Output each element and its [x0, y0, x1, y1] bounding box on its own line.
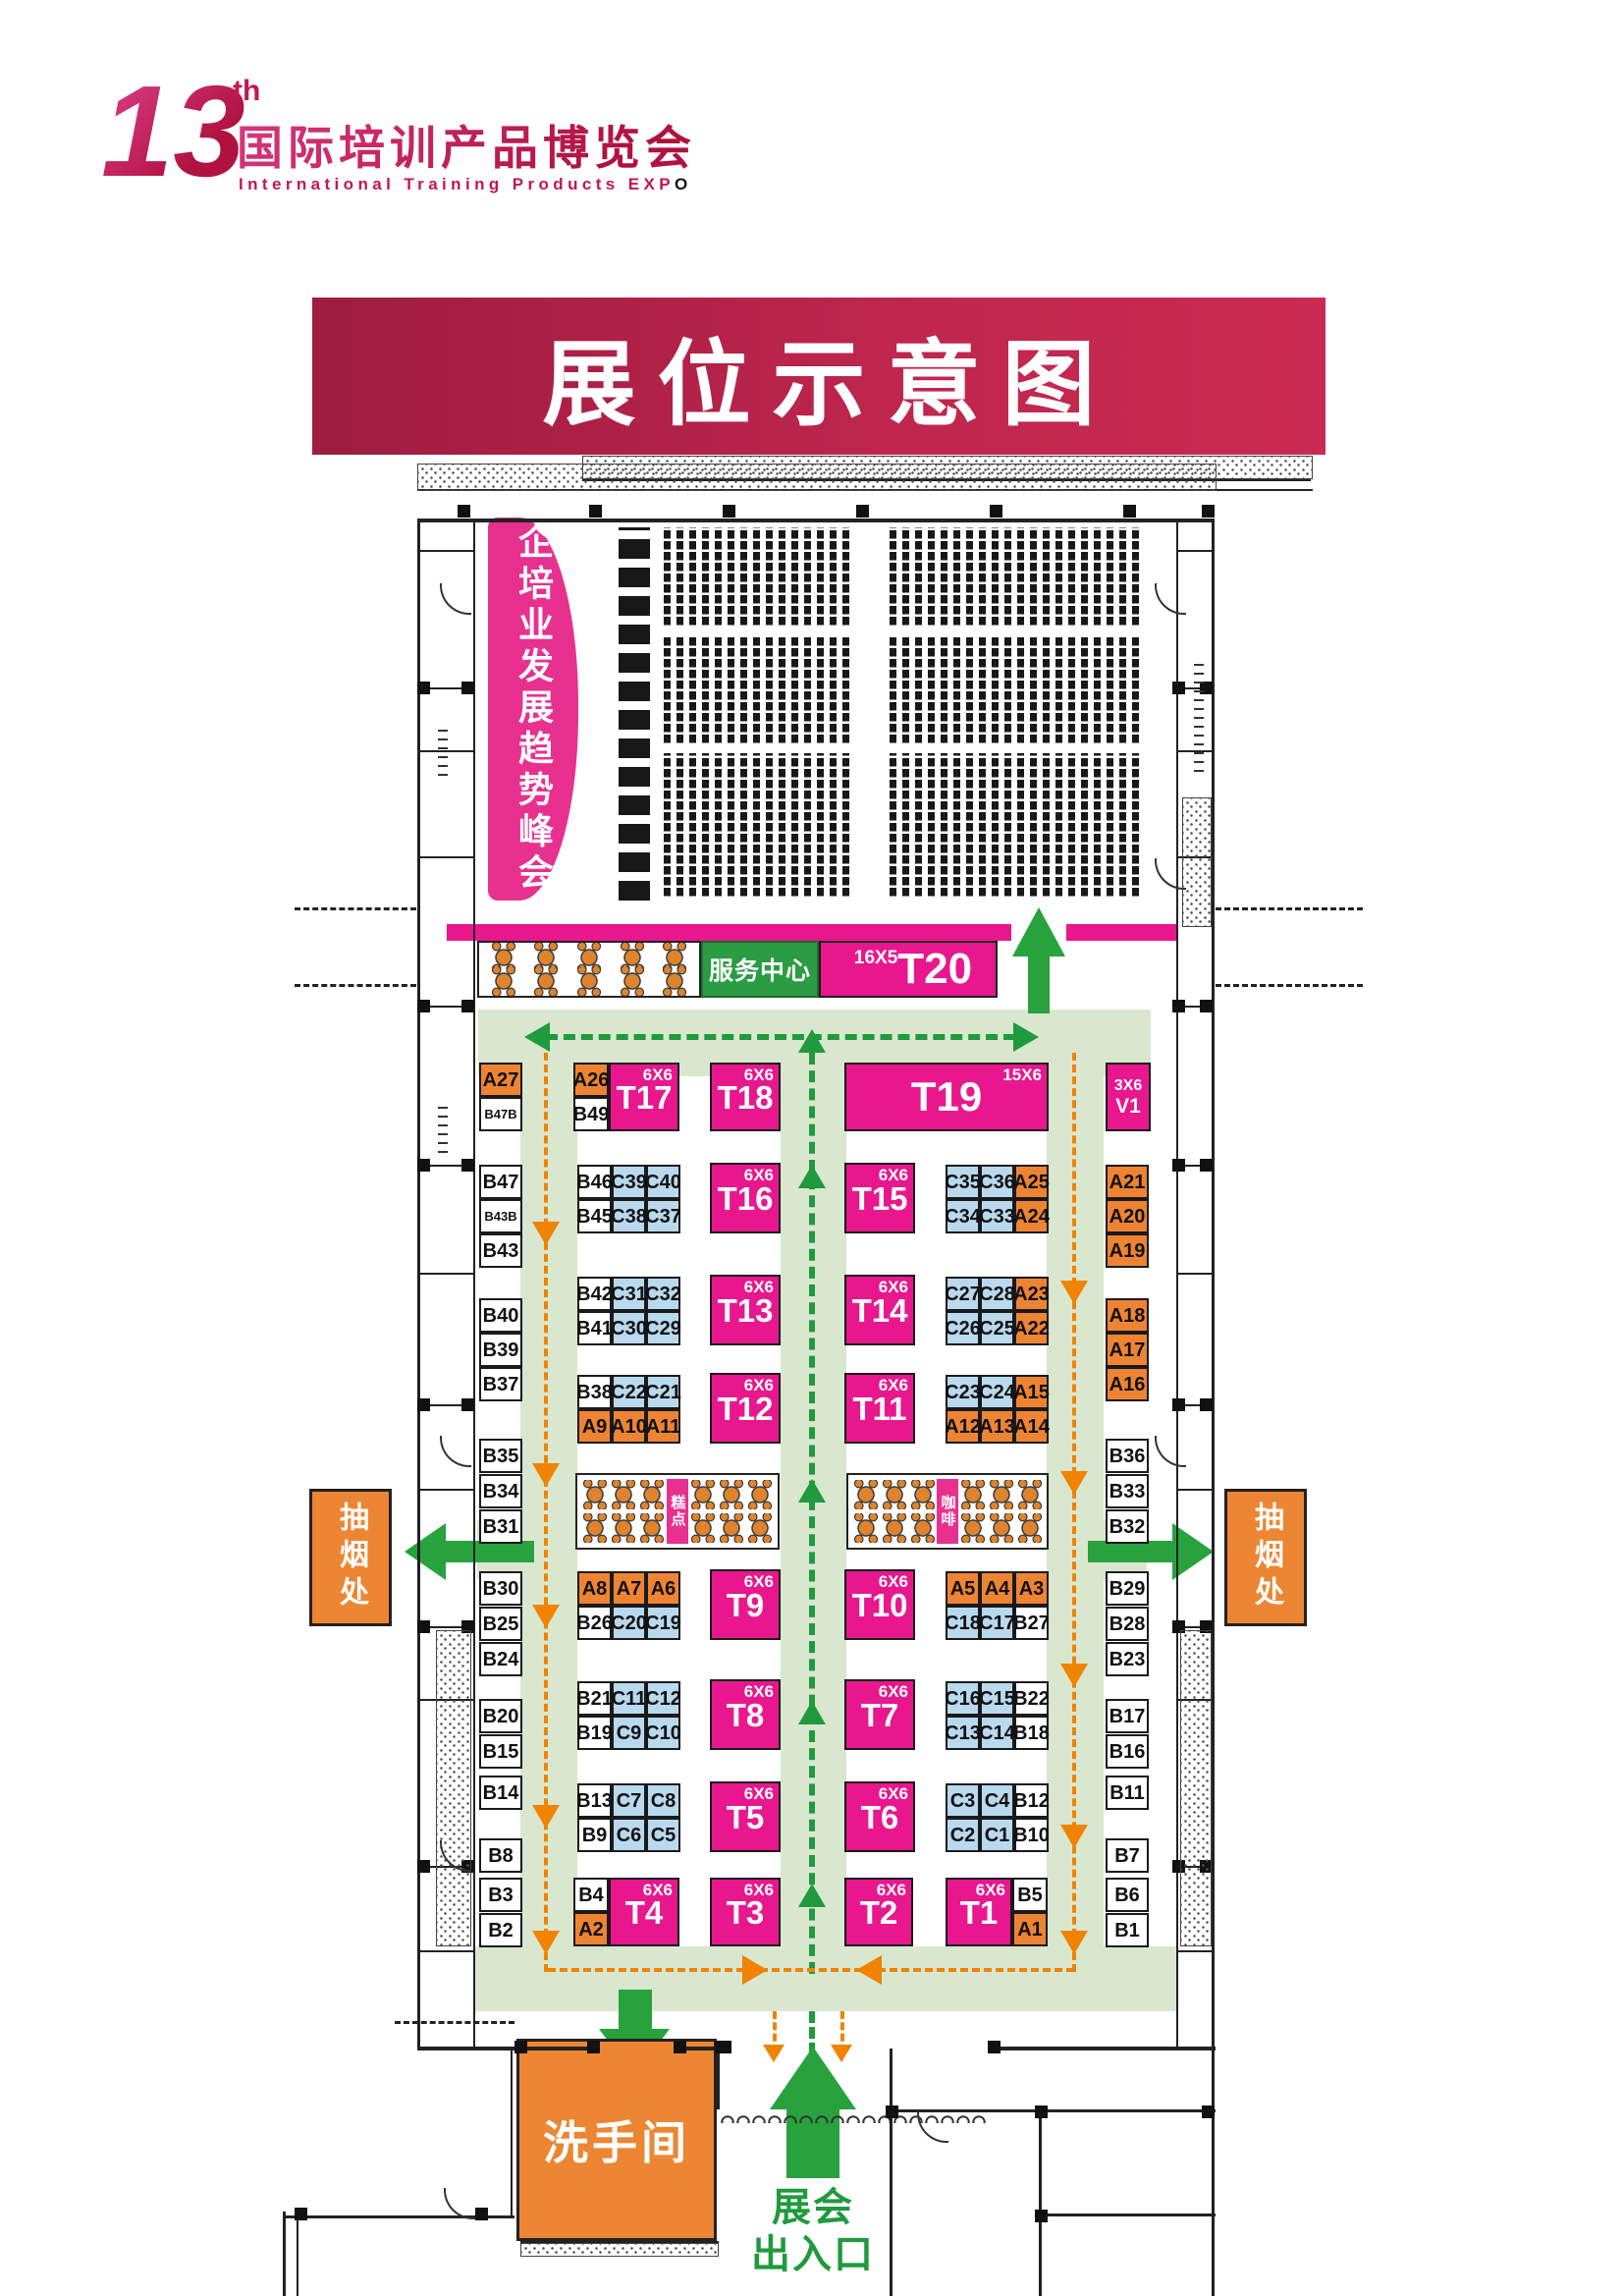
wall-line — [990, 2047, 1216, 2050]
service-center-label: 服务中心 — [709, 952, 811, 987]
booth-T6: 6X6T6 — [844, 1781, 915, 1852]
booth-id-label: B9 — [582, 1826, 608, 1845]
booth-id-label: B36 — [1109, 1447, 1146, 1466]
booth-B29: B29 — [1106, 1571, 1149, 1606]
entrance-line1: 展会 — [727, 2184, 899, 2231]
booth-B43: B43 — [479, 1233, 522, 1268]
booth-id-label: B6 — [1114, 1886, 1140, 1905]
flow-path-orange-left — [544, 1053, 548, 1972]
booth-size-label: 6X6 — [744, 1279, 774, 1295]
booth-A13: A13 — [980, 1409, 1014, 1444]
booth-T4: 6X6T4 — [609, 1878, 679, 1946]
booth-id-label: B18 — [1013, 1723, 1050, 1743]
booth-T3: 6X6T3 — [710, 1878, 781, 1946]
booth-id-label: C17 — [979, 1613, 1015, 1633]
booth-size-label: 16X5 — [854, 949, 897, 967]
rest-area: 糕点 — [575, 1473, 780, 1550]
booth-T16: 6X6T16 — [710, 1163, 781, 1233]
booth-id-label: B12 — [1013, 1791, 1050, 1811]
booth-C19: C19 — [646, 1606, 680, 1640]
door-arc — [1155, 1436, 1186, 1467]
booth-id-label: A21 — [1109, 1173, 1146, 1192]
booth-size-label: 6X6 — [879, 1167, 908, 1183]
booth-C9: C9 — [612, 1716, 646, 1750]
booth-T20: 16X5T20 — [819, 941, 998, 998]
wall-column — [417, 1000, 430, 1012]
booth-B35: B35 — [479, 1439, 522, 1473]
wall-line — [419, 550, 474, 552]
booth-A12: A12 — [946, 1409, 980, 1444]
booth-B42: B42 — [577, 1277, 612, 1311]
booth-C27: C27 — [946, 1277, 980, 1311]
booth-B45: B45 — [577, 1199, 612, 1233]
wall-column — [1035, 2210, 1048, 2222]
booth-id-label: B20 — [483, 1707, 519, 1726]
orange-arrowhead-right — [742, 1955, 768, 1985]
booth-A9: A9 — [577, 1409, 612, 1444]
table-icon — [582, 1480, 608, 1509]
booth-id-label: A24 — [1013, 1207, 1050, 1227]
wall-column — [475, 2208, 488, 2220]
wall-column — [1172, 682, 1185, 694]
booth-B38: B38 — [577, 1375, 612, 1409]
booth-B8: B8 — [479, 1838, 522, 1873]
booth-C21: C21 — [646, 1375, 680, 1409]
booth-T7: 6X6T7 — [844, 1679, 915, 1750]
booth-B28: B28 — [1106, 1607, 1149, 1641]
booth-A20: A20 — [1106, 1199, 1149, 1233]
booth-id-label: C38 — [611, 1207, 647, 1227]
booth-id-label: B3 — [488, 1886, 514, 1905]
booth-id-label: T3 — [727, 1896, 765, 1929]
booth-id-label: A14 — [1013, 1417, 1050, 1437]
grid-dashed-line — [295, 907, 416, 910]
table-icon — [910, 1480, 936, 1509]
wall-column — [1202, 505, 1215, 518]
table-icon — [611, 1480, 636, 1509]
booth-id-label: C32 — [645, 1285, 681, 1304]
rest-area-label: 糕点 — [667, 1479, 688, 1544]
flow-path-top — [546, 1034, 1015, 1040]
booth-V1: 3X6V1 — [1106, 1063, 1151, 1131]
booth-id-label: C7 — [617, 1791, 642, 1811]
rest-area-label: 咖啡 — [937, 1479, 958, 1544]
booth-A16: A16 — [1106, 1367, 1149, 1401]
wall-line — [419, 1273, 474, 1275]
booth-B1: B1 — [1106, 1913, 1149, 1947]
booth-id-label: A19 — [1109, 1241, 1146, 1261]
seating-column — [619, 527, 650, 901]
booth-id-label: A5 — [950, 1579, 976, 1599]
booth-A25: A25 — [1014, 1165, 1049, 1199]
booth-id-label: B8 — [488, 1846, 514, 1866]
wall-line — [417, 520, 420, 2050]
booth-id-label: T20 — [897, 948, 972, 991]
seating-block — [664, 527, 850, 628]
booth-C5: C5 — [646, 1818, 680, 1852]
booth-C15: C15 — [980, 1681, 1014, 1716]
entrance-arrow-head — [770, 2047, 856, 2109]
booth-A27: A27 — [479, 1063, 522, 1097]
booth-size-label: 6X6 — [744, 1167, 774, 1183]
booth-id-label: B5 — [1017, 1886, 1043, 1905]
rest-area: 咖啡 — [846, 1473, 1049, 1550]
wall-column — [1035, 2105, 1048, 2118]
booth-id-label: A8 — [582, 1579, 608, 1599]
wall-column — [1200, 1000, 1213, 1012]
booth-B39: B39 — [479, 1333, 522, 1367]
booth-id-label: C35 — [945, 1173, 981, 1192]
wall-line — [1176, 1489, 1214, 1491]
right-exit-arrow-shaft — [1088, 1541, 1174, 1562]
booth-size-label: 3X6 — [1114, 1078, 1142, 1094]
window-line — [438, 1100, 448, 1153]
booth-B41: B41 — [577, 1311, 612, 1345]
service-center: 服务中心 — [701, 941, 819, 998]
booth-id-label: C29 — [645, 1319, 681, 1339]
booth-B16: B16 — [1106, 1734, 1149, 1769]
booth-C20: C20 — [612, 1606, 646, 1640]
table-icon — [747, 1513, 773, 1543]
table-icon — [882, 1480, 907, 1509]
wall-line — [1176, 550, 1214, 552]
booth-C17: C17 — [980, 1606, 1014, 1640]
booth-size-label: 6X6 — [744, 1573, 774, 1590]
booth-T12: 6X6T12 — [710, 1373, 781, 1444]
flow-arrowhead-up — [798, 1479, 826, 1503]
table-icon — [639, 1513, 665, 1543]
booth-size-label: 6X6 — [744, 1882, 774, 1898]
booth-B25: B25 — [479, 1607, 522, 1641]
wall-line — [419, 1489, 474, 1491]
table-icon — [582, 1513, 608, 1543]
booth-id-label: B22 — [1013, 1689, 1050, 1709]
booth-T9: 6X6T9 — [710, 1569, 781, 1640]
booth-id-label: C5 — [651, 1826, 676, 1845]
flow-path-orange-bottom — [548, 1968, 1074, 1972]
booth-B46: B46 — [577, 1165, 612, 1199]
booth-id-label: A2 — [578, 1920, 604, 1940]
booth-T10: 6X6T10 — [844, 1569, 915, 1640]
booth-size-label: 6X6 — [879, 1573, 908, 1590]
booth-A18: A18 — [1106, 1298, 1149, 1333]
wall-line — [1176, 1950, 1214, 1952]
window-line — [1194, 660, 1204, 772]
booth-id-label: B2 — [488, 1921, 514, 1941]
wall-line — [1039, 2214, 1216, 2216]
stage-strip-right — [1066, 924, 1178, 941]
wall-column — [417, 1159, 430, 1172]
booth-id-label: T19 — [911, 1076, 982, 1118]
booth-A2: A2 — [573, 1912, 609, 1946]
booth-id-label: T17 — [617, 1081, 673, 1114]
wall-column — [514, 2041, 527, 2053]
booth-B14: B14 — [479, 1776, 522, 1810]
booth-C33: C33 — [980, 1199, 1014, 1233]
booth-id-label: B40 — [483, 1306, 519, 1326]
booth-id-label: C2 — [950, 1826, 976, 1845]
wall-line — [473, 520, 475, 2050]
booth-size-label: 6X6 — [744, 1377, 774, 1394]
restroom: 洗手间 — [516, 2039, 717, 2241]
hatched-wall — [1180, 1630, 1212, 1946]
booth-B22: B22 — [1014, 1681, 1049, 1716]
booth-id-label: A20 — [1109, 1207, 1146, 1227]
booth-id-label: B47 — [483, 1173, 519, 1192]
booth-size-label: 6X6 — [879, 1683, 908, 1700]
entrance-label: 展会 出入口 — [727, 2184, 899, 2278]
booth-id-label: B49 — [573, 1105, 610, 1124]
booth-A11: A11 — [646, 1409, 680, 1444]
wall-column — [587, 2041, 600, 2053]
booth-A22: A22 — [1014, 1311, 1049, 1345]
wall-line — [511, 2049, 513, 2215]
booth-id-label: B17 — [1109, 1707, 1146, 1726]
booth-A23: A23 — [1014, 1277, 1049, 1311]
booth-id-label: A13 — [979, 1417, 1015, 1437]
booth-id-label: A16 — [1109, 1375, 1146, 1394]
booth-B18: B18 — [1014, 1716, 1049, 1750]
booth-id-label: B39 — [483, 1340, 519, 1360]
booth-size-label: 6X6 — [976, 1882, 1005, 1898]
booth-id-label: B30 — [483, 1579, 519, 1599]
booth-id-label: B16 — [1109, 1742, 1146, 1762]
booth-C40: C40 — [646, 1165, 680, 1199]
booth-id-label: B13 — [576, 1791, 613, 1811]
booth-size-label: 6X6 — [643, 1066, 673, 1083]
booth-id-label: C20 — [611, 1613, 647, 1633]
booth-B9: B9 — [577, 1818, 612, 1852]
booth-A14: A14 — [1014, 1409, 1049, 1444]
booth-id-label: B46 — [576, 1173, 613, 1192]
booth-id-label: B7 — [1114, 1846, 1140, 1866]
wall-line — [717, 2049, 720, 2109]
wall-column — [1123, 505, 1136, 518]
booth-id-label: C37 — [645, 1207, 681, 1227]
booth-id-label: B43 — [483, 1241, 519, 1261]
booth-id-label: C8 — [651, 1791, 676, 1811]
booth-id-label: C19 — [645, 1613, 681, 1633]
booth-id-label: B28 — [1109, 1614, 1146, 1634]
orange-arrowhead-down — [1060, 1281, 1088, 1304]
booth-C18: C18 — [946, 1606, 980, 1640]
booth-size-label: 15X6 — [1002, 1066, 1042, 1083]
booth-id-label: C26 — [945, 1319, 981, 1339]
booth-C2: C2 — [946, 1818, 980, 1852]
booth-T17: 6X6T17 — [609, 1063, 679, 1131]
booth-id-label: A27 — [483, 1070, 519, 1090]
booth-A10: A10 — [612, 1409, 646, 1444]
top-exit-arrow-head — [1012, 907, 1065, 957]
grid-dashed-line — [295, 984, 416, 987]
booth-C8: C8 — [646, 1783, 680, 1818]
booth-id-label: C21 — [645, 1383, 681, 1402]
hatched-wall — [582, 456, 1313, 479]
door-arc — [1155, 858, 1186, 890]
booth-T2: 6X6T2 — [844, 1878, 913, 1946]
booth-A8: A8 — [577, 1571, 612, 1606]
service-tables — [477, 941, 701, 998]
table-icon — [960, 1480, 986, 1509]
flow-arrowhead-left — [524, 1022, 550, 1052]
booth-C35: C35 — [946, 1165, 980, 1199]
booth-id-label: A1 — [1017, 1920, 1043, 1940]
booth-C36: C36 — [980, 1165, 1014, 1199]
booth-size-label: 6X6 — [744, 1785, 774, 1802]
booth-size-label: 6X6 — [643, 1882, 673, 1898]
booth-C4: C4 — [980, 1783, 1014, 1818]
booth-id-label: A6 — [651, 1579, 676, 1599]
door-arc — [440, 1436, 471, 1467]
booth-C34: C34 — [946, 1199, 980, 1233]
booth-C1: C1 — [980, 1818, 1014, 1852]
booth-id-label: A12 — [945, 1417, 981, 1437]
table-icon — [853, 1480, 879, 1509]
booth-A1: A1 — [1012, 1912, 1048, 1946]
table-icon — [533, 966, 559, 996]
booth-T8: 6X6T8 — [710, 1679, 781, 1750]
booth-id-label: C34 — [945, 1207, 981, 1227]
booth-id-label: B19 — [576, 1723, 613, 1743]
booth-C22: C22 — [612, 1375, 646, 1409]
booth-id-label: A15 — [1013, 1383, 1050, 1402]
booth-id-label: B24 — [483, 1650, 519, 1669]
booth-id-label: C10 — [645, 1723, 681, 1743]
left-exit-arrow-shaft — [444, 1541, 534, 1562]
booth-C28: C28 — [980, 1277, 1014, 1311]
booth-id-label: B25 — [483, 1614, 519, 1634]
top-exit-arrow-shaft — [1028, 955, 1050, 1013]
booth-id-label: C31 — [611, 1285, 647, 1304]
booth-id-label: A10 — [611, 1417, 647, 1437]
booth-id-label: T8 — [727, 1699, 765, 1731]
booth-id-label: A9 — [582, 1417, 608, 1437]
booth-id-label: A3 — [1019, 1579, 1045, 1599]
booth-id-label: B27 — [1013, 1613, 1050, 1633]
window-line — [438, 723, 448, 776]
table-icon — [690, 1480, 716, 1509]
wall-column — [886, 2105, 898, 2118]
booth-B17: B17 — [1106, 1699, 1149, 1733]
wall-line — [1212, 2049, 1215, 2296]
booth-C38: C38 — [612, 1199, 646, 1233]
wall-line — [417, 2047, 597, 2050]
table-icon — [639, 1480, 665, 1509]
wall-line — [1176, 1273, 1214, 1275]
booth-id-label: C18 — [945, 1613, 981, 1633]
booth-A19: A19 — [1106, 1233, 1149, 1268]
wall-column — [1202, 2105, 1215, 2118]
table-icon — [910, 1513, 936, 1543]
wall-line — [1039, 2111, 1042, 2296]
booth-id-label: A25 — [1013, 1173, 1050, 1192]
wall-line — [419, 1950, 474, 1952]
flow-arrowhead-up — [798, 1884, 826, 1907]
booth-id-label: B34 — [483, 1482, 519, 1502]
booth-id-label: B29 — [1109, 1579, 1146, 1599]
table-icon — [853, 1513, 879, 1543]
orange-arrowhead-down — [1060, 1471, 1088, 1495]
wall-column — [856, 505, 869, 518]
booth-id-label: A22 — [1013, 1319, 1050, 1339]
booth-id-label: T6 — [861, 1801, 899, 1833]
booth-id-label: C33 — [979, 1207, 1015, 1227]
smoking-area-right-label: 抽烟处 — [1244, 1502, 1287, 1613]
flow-arrowhead-up — [798, 1029, 826, 1053]
booth-id-label: B42 — [576, 1285, 613, 1304]
wall-column — [1172, 1000, 1185, 1012]
booth-size-label: 6X6 — [744, 1683, 774, 1700]
booth-A5: A5 — [946, 1571, 980, 1606]
table-icon — [747, 1480, 773, 1509]
table-icon — [576, 966, 602, 996]
wall-line — [1176, 520, 1178, 2050]
booth-id-label: C27 — [945, 1285, 981, 1304]
booth-T11: 6X6T11 — [844, 1373, 915, 1444]
booth-id-label: T14 — [852, 1294, 908, 1327]
orange-arrowhead-down — [532, 1931, 560, 1954]
wall-column — [461, 1000, 474, 1012]
wall-column — [417, 1620, 430, 1633]
booth-A7: A7 — [612, 1571, 646, 1606]
booth-id-label: T7 — [861, 1699, 899, 1731]
hatched-wall — [520, 2243, 719, 2257]
booth-id-label: B23 — [1109, 1650, 1146, 1669]
booth-A24: A24 — [1014, 1199, 1049, 1233]
booth-id-label: B33 — [1109, 1482, 1146, 1502]
booth-id-label: C22 — [611, 1383, 647, 1402]
wall-column — [589, 505, 602, 518]
booth-B37: B37 — [479, 1367, 522, 1401]
booth-id-label: B1 — [1114, 1921, 1140, 1941]
booth-C11: C11 — [612, 1681, 646, 1716]
grid-dashed-line — [1216, 907, 1363, 910]
booth-id-label: V1 — [1115, 1096, 1141, 1117]
wall-line — [297, 2212, 298, 2296]
booth-B30: B30 — [479, 1571, 522, 1606]
booth-B49: B49 — [573, 1097, 609, 1131]
booth-id-label: B45 — [576, 1207, 613, 1227]
booth-B33: B33 — [1106, 1474, 1149, 1508]
booth-id-label: C9 — [617, 1723, 642, 1743]
table-icon — [491, 966, 516, 996]
booth-size-label: 6X6 — [879, 1377, 908, 1394]
table-icon — [611, 1513, 636, 1543]
booth-B12: B12 — [1014, 1783, 1049, 1818]
restroom-arrow-shaft — [619, 1990, 652, 2033]
booth-C37: C37 — [646, 1199, 680, 1233]
orange-arrowhead-left — [856, 1955, 882, 1985]
booth-id-label: B15 — [483, 1742, 519, 1762]
booth-C31: C31 — [612, 1277, 646, 1311]
table-icon — [620, 966, 645, 996]
grid-dashed-line — [395, 2021, 514, 2024]
booth-A17: A17 — [1106, 1333, 1149, 1367]
booth-size-label: 6X6 — [879, 1785, 908, 1802]
left-exit-arrow-head — [405, 1523, 446, 1580]
table-icon — [989, 1513, 1014, 1543]
smoking-area-left: 抽烟处 — [309, 1489, 392, 1626]
restroom-label: 洗手间 — [543, 2107, 690, 2172]
door-arc — [440, 583, 471, 615]
booth-B5: B5 — [1012, 1878, 1048, 1912]
booth-id-label: T5 — [727, 1801, 765, 1833]
booth-C26: C26 — [946, 1311, 980, 1345]
booth-id-label: A26 — [573, 1070, 610, 1090]
booth-B43B: B43B — [479, 1199, 522, 1233]
booth-id-label: C36 — [979, 1173, 1015, 1192]
booth-id-label: B4 — [578, 1886, 604, 1905]
